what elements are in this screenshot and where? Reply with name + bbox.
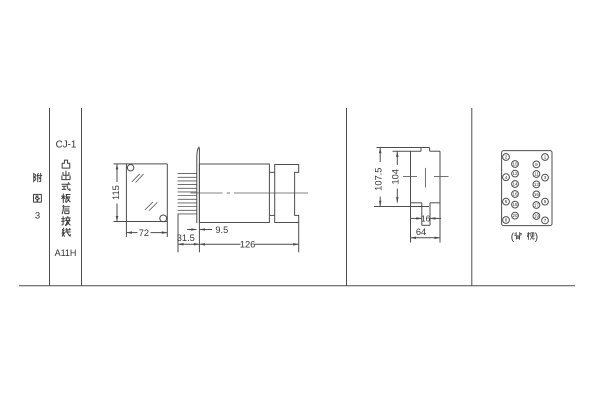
svg-text:20: 20 xyxy=(512,213,518,218)
svg-text:13: 13 xyxy=(534,182,540,187)
svg-text:12: 12 xyxy=(512,171,518,176)
svg-text:7: 7 xyxy=(544,218,547,223)
svg-text:72: 72 xyxy=(139,228,149,238)
svg-text:4: 4 xyxy=(505,175,508,180)
svg-text:9.5: 9.5 xyxy=(215,225,228,235)
svg-text:31.5: 31.5 xyxy=(177,233,195,243)
svg-text:CJ-1: CJ-1 xyxy=(56,139,77,150)
svg-text:9: 9 xyxy=(535,162,538,167)
svg-text:115: 115 xyxy=(111,185,121,200)
svg-text:104: 104 xyxy=(391,169,401,185)
svg-text:1: 1 xyxy=(544,155,547,160)
svg-text:8: 8 xyxy=(505,218,508,223)
svg-text:): ) xyxy=(535,232,538,243)
svg-text:16: 16 xyxy=(512,192,518,197)
svg-text:5: 5 xyxy=(544,199,547,204)
svg-text:19: 19 xyxy=(534,214,540,219)
svg-text:17: 17 xyxy=(534,203,540,208)
svg-text:15: 15 xyxy=(534,192,540,197)
svg-text:11: 11 xyxy=(534,172,539,177)
svg-text:2: 2 xyxy=(505,155,508,160)
svg-text:64: 64 xyxy=(416,227,426,237)
svg-text:10: 10 xyxy=(512,162,518,167)
svg-text:126: 126 xyxy=(240,240,256,250)
svg-text:107.5: 107.5 xyxy=(373,168,383,191)
svg-text:14: 14 xyxy=(512,182,518,187)
svg-text:6: 6 xyxy=(505,199,508,204)
svg-text:18: 18 xyxy=(512,202,518,207)
svg-text:16: 16 xyxy=(421,213,431,223)
svg-text:A11H: A11H xyxy=(55,248,77,258)
svg-text:3: 3 xyxy=(35,211,40,222)
svg-text:3: 3 xyxy=(544,175,547,180)
